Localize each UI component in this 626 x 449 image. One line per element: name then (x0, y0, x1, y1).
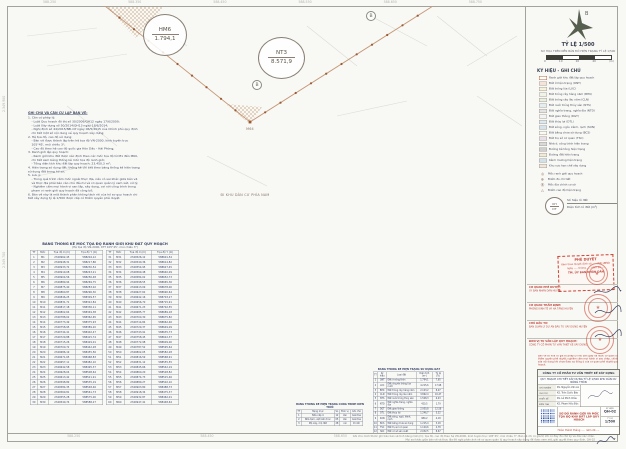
cell: SKC (378, 430, 387, 433)
legend-symbol-list: ◎ Mốc ranh giới quy hoạch ⊕ Điểm đo chi … (539, 171, 619, 194)
legend-swatch (539, 103, 547, 107)
scale-tick: 40 (592, 59, 596, 63)
titleblock-company: CÔNG TY CỔ PHẦN TƯ VẤN THIẾT KẾ XÂY DỰNG (538, 370, 619, 377)
table-row: 3 Mộ xây, mộ đất 28 cái Di dời (296, 422, 363, 426)
cell-y: 588448,64 (152, 400, 179, 405)
legend-list: Ranh giới khu đất lập quy hoạch Đất ở hi… (539, 75, 619, 170)
vertex-point-label: M64 (238, 127, 262, 131)
legend-label: Đường đất hiện trạng (549, 153, 579, 156)
legend-swatch (539, 98, 547, 102)
footer-line-2: Mọi sai khác giữa bản vẽ và thực địa đề … (338, 438, 595, 441)
cell: Đất cơ sở sản xuất (387, 430, 416, 433)
footer-notes: Ghi chú: Kích thước ghi trên bản vẽ tính… (338, 435, 596, 448)
road-label: ĐI KHU DÂN CƯ PHÍA NAM (205, 193, 285, 197)
grid-labels-top: 588.250588.350588.450588.550588.650588.7… (7, 0, 518, 4)
legend-symbol-item: △ Điểm cao độ hiện trạng (539, 188, 619, 194)
cell-moc: M30 (38, 400, 49, 405)
coord-table-subtitle: (Hệ tọa độ VN-2000, KTT 105°45', múi chi… (30, 246, 180, 249)
drawing-title: SƠ ĐỒ RANH GIỚI VÀ MỐC TỌA ĐỘ KHU ĐẤT LẬ… (557, 407, 601, 427)
cell: 8,67 (433, 430, 444, 433)
structures-table: TT Hạng mục SL Đơn vị Ghi chú 1 Nhà cấp … (296, 410, 363, 427)
legend-label: Nhà ở, công trình hiện trạng (549, 142, 589, 145)
note-line: 6. Bản vẽ này là một thành phần không tá… (28, 193, 140, 201)
grid-label: 588.450 (213, 0, 226, 4)
note-line: - Nghị định số 44/2015/NĐ-CP ngày 06/5/2… (28, 128, 140, 136)
cell-tt: 60 (106, 400, 113, 405)
legend-label: Kênh mương hiện trạng (549, 159, 582, 162)
cell-tt: 30 (30, 400, 37, 405)
legend-label: Điểm cao độ hiện trạng (548, 189, 581, 192)
lot-id: NT3 (276, 50, 287, 57)
legend-symbol-icon: ⊕ (539, 177, 546, 181)
table-row: 12 SKC Đất cơ sở sản xuất 2.032,5 8,67 (373, 430, 444, 433)
benchmark-marker: B (252, 80, 262, 90)
landuse-table: TT Ký hiệu Loại đất Diện tích (m²) Tỷ lệ… (373, 372, 444, 434)
role-label: CHỦ NHIỆM (538, 385, 556, 390)
note-line: 4. Hiện trạng sử dụng đất: thống kê chi … (28, 166, 140, 174)
legend-swatch (539, 114, 547, 118)
titleblock-roles: CHỦ NHIỆM KS. Nguyễn Văn An CHỦ TRÌ KS. … (538, 385, 581, 407)
legend-title: KÝ HIỆU - GHI CHÚ (537, 68, 619, 73)
lot-symbol-bottom: DT (550, 206, 558, 211)
legend-swatch (539, 164, 547, 168)
lot-circle-hm6: HM6 1.794,1 (143, 14, 187, 56)
legend-label: Đất trồng cây hàng năm (BHK) (549, 93, 592, 96)
legal-note: Bản vẽ số hóa có giá trị pháp lý như bản… (538, 355, 618, 368)
scale-tick: 0 (544, 59, 546, 63)
legend-label: Đất bằng chưa sử dụng (BCS) (549, 131, 590, 134)
lot-circle-nt3: NT3 8.571,9 (258, 37, 305, 79)
notes-lines: 1. Căn cứ pháp lý:- Luật Quy hoạch đô th… (28, 116, 140, 200)
grid-label: 588.250 (67, 434, 80, 438)
grid-label: 588.650 (384, 0, 397, 4)
role-name: KS. Phạm Hữu Đức (556, 402, 580, 407)
legend-label: Mốc ranh giới quy hoạch (548, 172, 582, 175)
drawing-sheet: 588.250588.350588.450588.550588.650588.7… (0, 0, 626, 449)
legend-label: Đường bê tông hiện trạng (549, 148, 585, 151)
landuse-table-block: BẢNG THỐNG KÊ HIỆN TRẠNG SỬ DỤNG ĐẤT TT … (373, 368, 445, 433)
titleblock-signature (586, 388, 614, 403)
titleblock-date-line: Hoàn thành tháng ..... năm 20..... (538, 427, 619, 434)
legend-symbol-icon: Ⓑ (539, 183, 546, 187)
cell: 2.032,5 (416, 430, 432, 433)
qr-code (541, 410, 555, 424)
legend-label: Đất ở hiện trạng (ONT) (549, 82, 581, 85)
role-label: KIỂM TRA (538, 402, 556, 407)
role-label: THIẾT KẾ (538, 396, 556, 401)
role-name: KS. Trần Quốc Bảo (556, 391, 580, 396)
legend-swatch (539, 81, 547, 85)
legend-label: Điểm đo chi tiết (548, 178, 570, 181)
cell-moc: M60 (114, 400, 125, 405)
cell: Di dời (350, 422, 363, 426)
legend-swatch (539, 120, 547, 124)
grid-label: 588.550 (298, 0, 311, 4)
grid-label: 588.350 (128, 0, 141, 4)
legend-label: Đất trồng cây lâu năm (CLN) (549, 98, 589, 101)
legend-label: Ranh giới khu đất lập quy hoạch (549, 76, 594, 79)
grid-label-left-1: 2.349.900 (2, 96, 6, 112)
legend-swatch (539, 147, 547, 151)
note-line: - Bản vẽ được thành lập trên hệ tọa độ V… (28, 139, 140, 147)
legend-swatch (539, 136, 547, 140)
cell-x: 2349947,41 (124, 400, 151, 405)
lot-symbol-circle: KH DT (545, 197, 564, 215)
cell: 12 (373, 430, 377, 433)
legend-item: Khu vực hạn chế xây dựng (539, 163, 619, 169)
legend-label: Đất trồng lúa (LUC) (549, 87, 576, 90)
role-name: KS. Lê Minh Châu (556, 396, 580, 401)
legend-symbol-icon: △ (539, 188, 546, 192)
title-block: CÔNG TY CỔ PHẦN TƯ VẤN THIẾT KẾ XÂY DỰNG… (537, 369, 620, 435)
coord-row: 60 M60 2349947,41 588448,64 (106, 400, 179, 405)
legend-swatch (539, 131, 547, 135)
scale-tick-labels: 0 10 20 40 (m) (544, 59, 614, 63)
grid-label: 588.750 (469, 0, 482, 4)
svg-text:B: B (585, 11, 589, 17)
legend-swatch (539, 76, 547, 80)
legend-label: Đất sông, ngòi, kênh, rạch (SON) (549, 126, 595, 129)
legend-label: Đất thủy lợi (DTL) (549, 120, 574, 123)
legend-label: Đất nghĩa trang, nghĩa địa (NTD) (549, 109, 595, 112)
benchmark-marker: B (366, 11, 376, 21)
north-arrow-icon: B (558, 8, 598, 42)
sheet-scale-value: 1/500 (601, 420, 619, 424)
role-label: CHỦ TRÌ (538, 391, 556, 396)
titleblock-signature-cell (581, 385, 620, 407)
note-line: - Nghiêm cấm mọi hành vi san lấp, xây dự… (28, 185, 140, 193)
landuse-table-title: BẢNG THỐNG KÊ HIỆN TRẠNG SỬ DỤNG ĐẤT (373, 368, 445, 371)
cell: cái (340, 422, 351, 426)
legend-symbol-icon: ◎ (539, 172, 546, 176)
legend-label: Khu vực hạn chế xây dựng (549, 164, 586, 167)
scale-title: TỶ LỆ 1/500 (537, 42, 619, 48)
scale-tick: 10 (559, 59, 563, 63)
note-line: - Ranh giới khu đất được xác định theo c… (28, 154, 140, 162)
cell: Mộ xây, mộ đất (301, 422, 334, 426)
scale-tick: 20 (576, 59, 580, 63)
footer-signature-scribble (596, 435, 616, 447)
sheet-code-value: QH-02 (601, 410, 619, 414)
legend-label: Đất trụ sở cơ quan (TSC) (549, 137, 584, 140)
legend-swatch (539, 87, 547, 91)
lot-area: 8.571,9 (268, 57, 295, 66)
legend-swatch (539, 125, 547, 129)
legend-swatch (539, 153, 547, 157)
coord-table-right: TT Mốc Tọa độ X (m) Tọa độ Y (m) 31 M31 … (106, 250, 179, 405)
note-line: - Trong quá trình cắm mốc ngoài thực địa… (28, 177, 140, 185)
structures-table-block: BẢNG THỐNG KÊ HIỆN TRẠNG CÔNG TRÌNH KIẾN… (296, 403, 364, 433)
cell-x: 2349540,74 (48, 400, 75, 405)
coord-row: 30 M30 2349540,74 588588,27 (30, 400, 103, 405)
legend-swatch (539, 142, 547, 146)
role-name: KS. Nguyễn Văn An (556, 385, 580, 390)
legend-swatch (539, 158, 547, 162)
lot-symbol-labels: Số hiệu lô đất Diện tích lô đất (m²) (567, 198, 617, 209)
cell-y: 588588,27 (76, 400, 103, 405)
round-stamp: ★ (586, 263, 608, 285)
legend-label: Mốc địa chính cơ sở (548, 183, 576, 186)
grid-label: 588.450 (200, 434, 213, 438)
coord-table-left: TT Mốc Tọa độ X (m) Tọa độ Y (m) 1 M1 23… (30, 250, 103, 405)
coordinate-table-block: BẢNG THỐNG KÊ MỐC TỌA ĐỘ RANH GIỚI KHU Đ… (30, 242, 180, 434)
legend-swatch (539, 109, 547, 113)
scale-note: SƠ HỌA TRÊN NỀN BẢN ĐỒ HIỆN TRẠNG TỶ LỆ … (535, 49, 621, 53)
legend-label: Đất nuôi trồng thủy sản (NTS) (549, 104, 591, 107)
legal-note-text: Bản vẽ số hóa có giá trị pháp lý như bản… (538, 355, 618, 367)
lot-symbol-label-bottom: Diện tích lô đất (m²) (567, 204, 617, 209)
legend-label: Đất giao thông (DGT) (549, 115, 579, 118)
notes-block: GHI CHÚ VÀ CĂN CỨ LẬP BẢN VẼ: 1. Căn cứ … (28, 111, 140, 237)
titleblock-project: QUY HOẠCH CHI TIẾT XÂY DỰNG TỶ LỆ 1/500 … (538, 377, 619, 385)
lot-area: 1.794,1 (152, 34, 179, 43)
scale-unit: (m) (609, 59, 614, 63)
structures-table-title: BẢNG THỐNG KÊ HIỆN TRẠNG CÔNG TRÌNH KIẾN… (296, 403, 364, 409)
signature-scribbles (592, 285, 622, 357)
panel-divider (525, 6, 526, 442)
grid-label: 588.250 (43, 0, 56, 4)
notes-title: GHI CHÚ VÀ CĂN CỨ LẬP BẢN VẼ: (28, 111, 140, 115)
lot-id: HM6 (159, 27, 171, 34)
grid-label-left-2: 2.349.700 (2, 252, 6, 268)
legend-swatch (539, 92, 547, 96)
